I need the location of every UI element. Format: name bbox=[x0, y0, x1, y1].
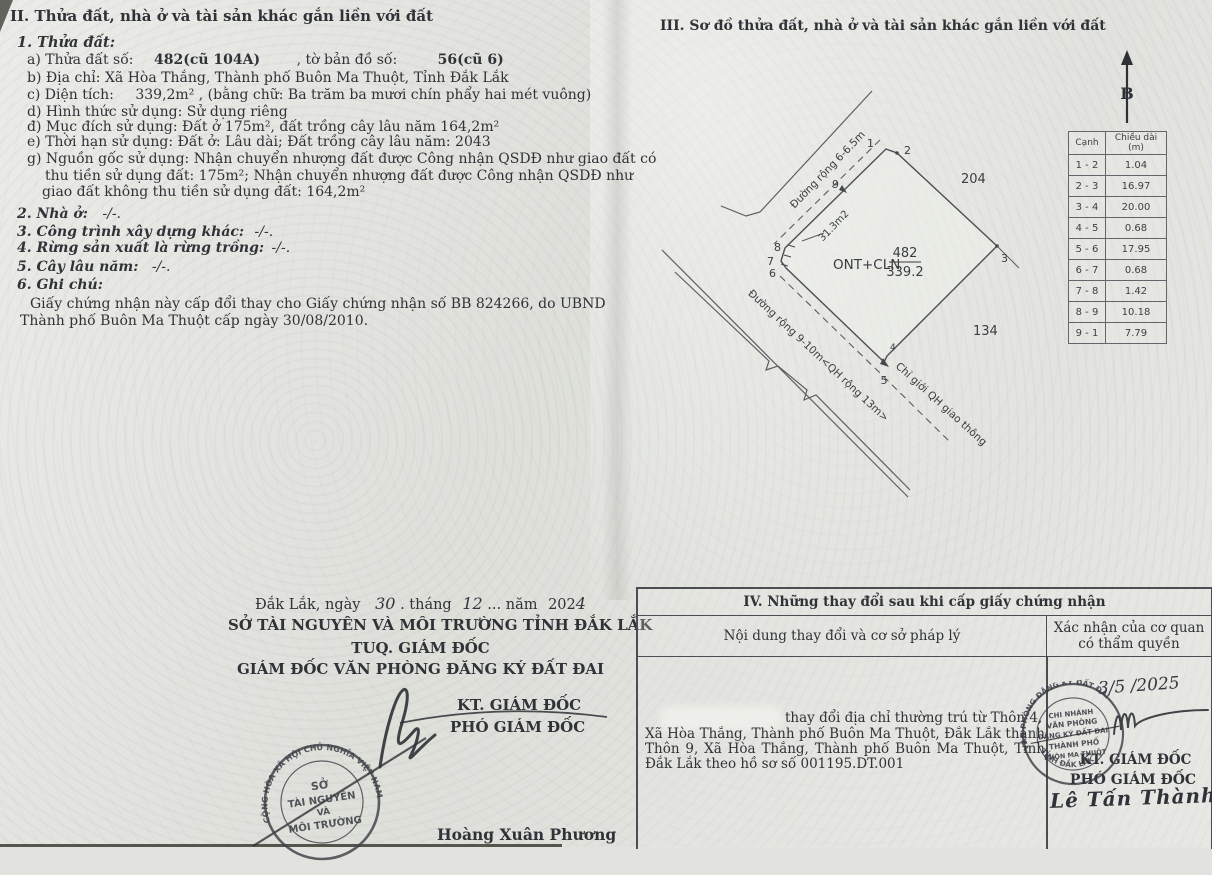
length-cell: 16.97 bbox=[1106, 181, 1166, 192]
vertex-label-1: 1 bbox=[867, 137, 874, 150]
item-perennial-label: 5. Cây lâu năm: bbox=[17, 259, 138, 275]
area-value: 339,2m² bbox=[135, 87, 194, 103]
change-content-line1: thay đổi địa chỉ thường trú từ Thôn 4, bbox=[785, 710, 1042, 727]
north-arrowhead bbox=[1121, 50, 1133, 65]
area-in-words: , (bằng chữ: Ba trăm ba mươi chín phẩy h… bbox=[199, 87, 591, 103]
item-construction-value: -/-. bbox=[255, 224, 274, 240]
map-sheet-value: 56(cũ 6) bbox=[438, 52, 504, 68]
length-cell: 0.68 bbox=[1106, 265, 1166, 276]
stamp-line-so: SỞ bbox=[310, 777, 330, 793]
vertex-label-9: 9 bbox=[832, 178, 839, 191]
field-address: b) Địa chỉ: Xã Hòa Thắng, Thành phố Buôn… bbox=[27, 70, 509, 87]
table-row: 6 - 70.68 bbox=[1069, 259, 1166, 280]
date-day-handwritten: 30 bbox=[375, 594, 395, 613]
section4-col1-header: Nội dung thay đổi và cơ sở pháp lý bbox=[724, 628, 961, 644]
vertex-label-3: 3 bbox=[1001, 252, 1008, 265]
edge-cell: 6 - 7 bbox=[1069, 260, 1106, 280]
vertex-dot-2 bbox=[895, 151, 899, 155]
table-row: 2 - 316.97 bbox=[1069, 175, 1166, 196]
edge-table-header: Cạnh Chiều dài (m) bbox=[1069, 132, 1166, 154]
vertex-label-4: 4 bbox=[890, 343, 896, 353]
vertex-label-7: 7 bbox=[767, 255, 774, 268]
adjacent-parcel-204: 204 bbox=[961, 172, 986, 187]
note-line2: Thành phố Buôn Ma Thuột cấp ngày 30/08/2… bbox=[20, 313, 368, 330]
table-row: 9 - 17.79 bbox=[1069, 322, 1166, 343]
table-row: 5 - 617.95 bbox=[1069, 238, 1166, 259]
note-line1: Giấy chứng nhận này cấp đổi thay cho Giấ… bbox=[30, 296, 606, 313]
item-perennial-value: -/-. bbox=[152, 259, 171, 275]
item-house: 2. Nhà ở: -/-. bbox=[17, 206, 121, 223]
field-origin-line2: thu tiền sử dụng đất: 175m²; Nhận chuyển… bbox=[45, 168, 633, 185]
item-house-value: -/-. bbox=[102, 206, 121, 222]
date-year-handwritten: 4 bbox=[576, 594, 586, 613]
item-forest-label: 4. Rừng sản xuất là rừng trồng: bbox=[17, 240, 264, 256]
table-row: 7 - 81.42 bbox=[1069, 280, 1166, 301]
table-row: 8 - 910.18 bbox=[1069, 301, 1166, 322]
adjacent-parcel-134: 134 bbox=[973, 324, 998, 339]
stamp-chi-nhanh: VĂN PHÒNG ĐĂNG KÝ ĐẤT ĐAI TỈNH ĐẮK LẮK C… bbox=[1015, 676, 1131, 792]
section4-col2-header-line2: có thẩm quyền bbox=[1078, 636, 1179, 652]
authority-tuq: TUQ. GIÁM ĐỐC bbox=[228, 640, 613, 657]
field-parcel-number-line: a) Thửa đất số: 482(cũ 104A) , tờ bản đồ… bbox=[27, 52, 504, 69]
vertex-label-5: 5 bbox=[881, 374, 888, 387]
item-notes-label: 6. Ghi chú: bbox=[17, 277, 103, 294]
vertex-label-2: 2 bbox=[904, 144, 911, 157]
map-sheet-label: , tờ bản đồ số: bbox=[297, 52, 398, 68]
edge-length-table: Cạnh Chiều dài (m) 1 - 21.04 2 - 316.97 … bbox=[1068, 131, 1167, 344]
north-arrow: B bbox=[1108, 45, 1148, 130]
item-forest-value: -/-. bbox=[272, 240, 291, 256]
date-thang: . tháng bbox=[400, 597, 452, 613]
table-row: 4 - 50.68 bbox=[1069, 217, 1166, 238]
issue-date-line: Đắk Lắk, ngày 30 . tháng 12 ... năm 2024 bbox=[255, 595, 586, 614]
item-perennial: 5. Cây lâu năm: -/-. bbox=[17, 259, 170, 276]
edge-cell: 2 - 3 bbox=[1069, 176, 1106, 196]
area-label: c) Diện tích: bbox=[27, 87, 114, 103]
parcel-diagram: 1 2 3 4 5 6 7 8 9 204 134 ONT+CLN 482 33… bbox=[618, 78, 1068, 548]
field-use-term: e) Thời hạn sử dụng: Đất ở: Lâu dài; Đất… bbox=[27, 134, 491, 151]
change-content-line4: Đắk Lắk theo hồ sơ số 001195.DT.001 bbox=[645, 756, 904, 773]
edge-cell: 4 - 5 bbox=[1069, 218, 1106, 238]
edge-col-header: Cạnh bbox=[1069, 132, 1106, 154]
issuing-authority: SỞ TÀI NGUYÊN VÀ MÔI TRƯỜNG TỈNH ĐẮK LẮK bbox=[228, 617, 613, 634]
length-cell: 20.00 bbox=[1106, 202, 1166, 213]
stamp-so-tai-nguyen: CỘNG HÒA XÃ HỘI CHỦ NGHĨA VIỆT NAM SỞ TÀ… bbox=[249, 729, 396, 875]
item-house-label: 2. Nhà ở: bbox=[17, 206, 88, 222]
item-construction-label: 3. Công trình xây dựng khác: bbox=[17, 224, 244, 240]
length-cell: 10.18 bbox=[1106, 307, 1166, 318]
section3-title: III. Sơ đồ thửa đất, nhà ở và tài sản kh… bbox=[660, 18, 1106, 35]
edge-cell: 5 - 6 bbox=[1069, 239, 1106, 259]
item-forest: 4. Rừng sản xuất là rừng trồng: -/-. bbox=[17, 240, 290, 257]
field-area-line: c) Diện tích: 339,2m² , (bằng chữ: Ba tr… bbox=[27, 87, 591, 104]
section2-title: II. Thửa đất, nhà ở và tài sản khác gắn … bbox=[10, 8, 433, 25]
parcel-number-value: 482(cũ 104A) bbox=[154, 52, 260, 68]
field-thua-dat-heading: 1. Thửa đất: bbox=[17, 34, 115, 51]
vertex-label-8: 8 bbox=[774, 241, 781, 254]
parcel-number-label: a) Thửa đất số: bbox=[27, 52, 134, 68]
section4-col2-header-line1: Xác nhận của cơ quan bbox=[1054, 620, 1205, 636]
length-cell: 17.95 bbox=[1106, 244, 1166, 255]
north-label: B bbox=[1120, 84, 1134, 103]
table-row: 1 - 21.04 bbox=[1069, 154, 1166, 175]
parcel-number-label: 482 bbox=[893, 246, 918, 261]
length-cell: 7.79 bbox=[1106, 328, 1166, 339]
confirm-signer-name: Lê Tấn Thành bbox=[1050, 787, 1212, 810]
date-nam: ... năm bbox=[487, 597, 537, 613]
edge-cell: 1 - 2 bbox=[1069, 155, 1106, 175]
vertex-label-6: 6 bbox=[769, 267, 776, 280]
length-col-header: Chiều dài (m) bbox=[1106, 133, 1166, 153]
length-cell: 0.68 bbox=[1106, 223, 1166, 234]
length-cell: 1.42 bbox=[1106, 286, 1166, 297]
edge-cell: 9 - 1 bbox=[1069, 323, 1106, 343]
field-origin-line3: giao đất không thu tiền sử dụng đất: 164… bbox=[42, 184, 365, 201]
date-month-handwritten: 12 bbox=[462, 594, 482, 613]
section4-title: IV. Những thay đổi sau khi cấp giấy chứn… bbox=[743, 594, 1105, 610]
change-content-line3: Thôn 9, Xã Hòa Thắng, Thành phố Buôn Ma … bbox=[645, 741, 1045, 757]
edge-cell: 7 - 8 bbox=[1069, 281, 1106, 301]
planning-boundary-label: Chỉ giới QH giao thông bbox=[893, 360, 989, 448]
date-year-printed: 202 bbox=[548, 597, 576, 613]
length-cell: 1.04 bbox=[1106, 160, 1166, 171]
change-content-line2: Xã Hòa Thắng, Thành phố Buôn Ma Thuột, Đ… bbox=[645, 726, 1045, 742]
date-prefix: Đắk Lắk, ngày bbox=[255, 597, 360, 613]
edge-cell: 3 - 4 bbox=[1069, 197, 1106, 217]
table-row: 3 - 420.00 bbox=[1069, 196, 1166, 217]
parcel-area-label: 339.2 bbox=[886, 265, 923, 280]
edge-cell: 8 - 9 bbox=[1069, 302, 1106, 322]
item-construction: 3. Công trình xây dựng khác: -/-. bbox=[17, 224, 273, 241]
stamp-line-va: VÀ bbox=[316, 805, 331, 819]
field-origin-line1: g) Nguồn gốc sử dụng: Nhận chuyển nhượng… bbox=[27, 151, 656, 168]
vertex-dot-3 bbox=[995, 244, 999, 248]
